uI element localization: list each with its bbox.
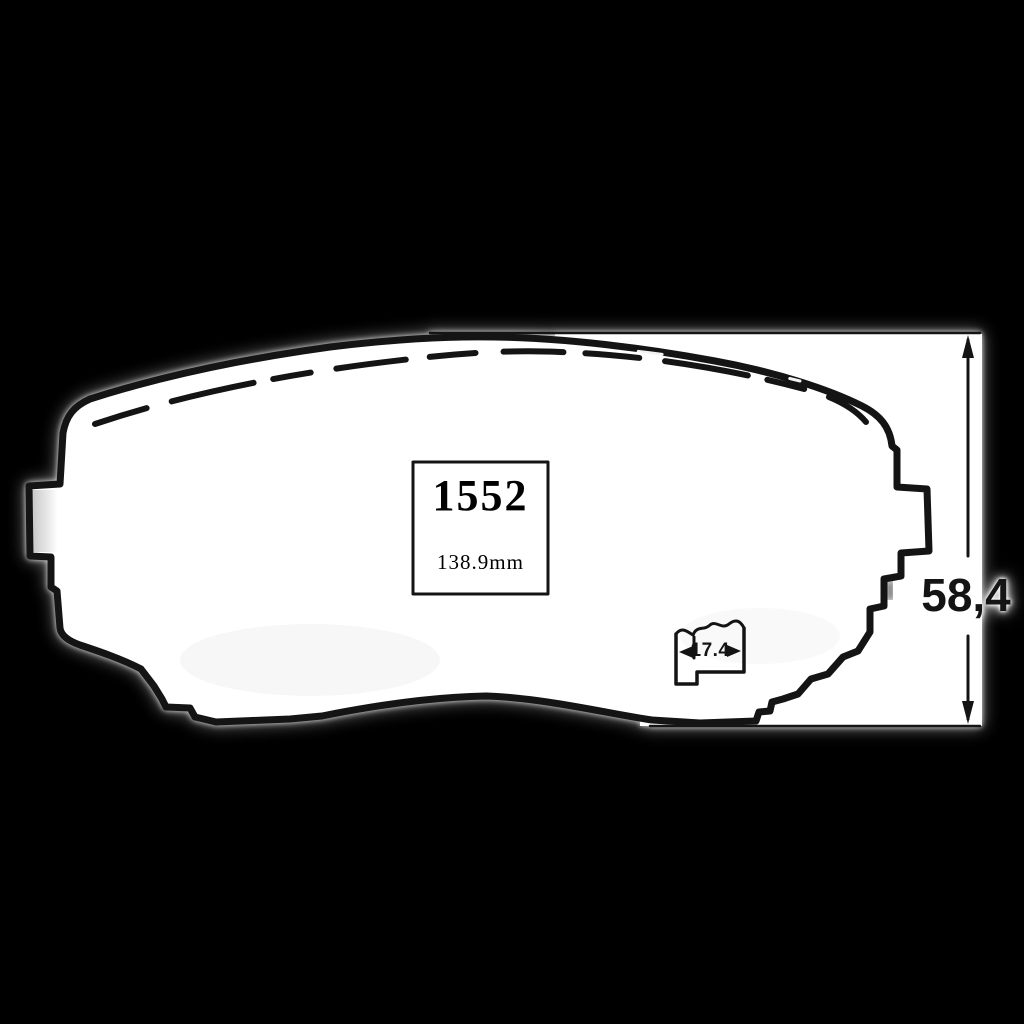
drawing-stage: 1552 138.9mm 17.4 58,4	[0, 0, 1024, 1024]
pad-length-text: 138.9mm	[437, 550, 524, 574]
height-dimension-text: 58,4	[906, 570, 1024, 620]
part-number-text: 1552	[433, 474, 529, 518]
thickness-dimension-text: 17.4	[690, 641, 730, 661]
part-number-label: 1552 138.9mm	[413, 462, 548, 594]
scan-smudge	[180, 624, 440, 696]
tab-shading	[32, 490, 58, 552]
